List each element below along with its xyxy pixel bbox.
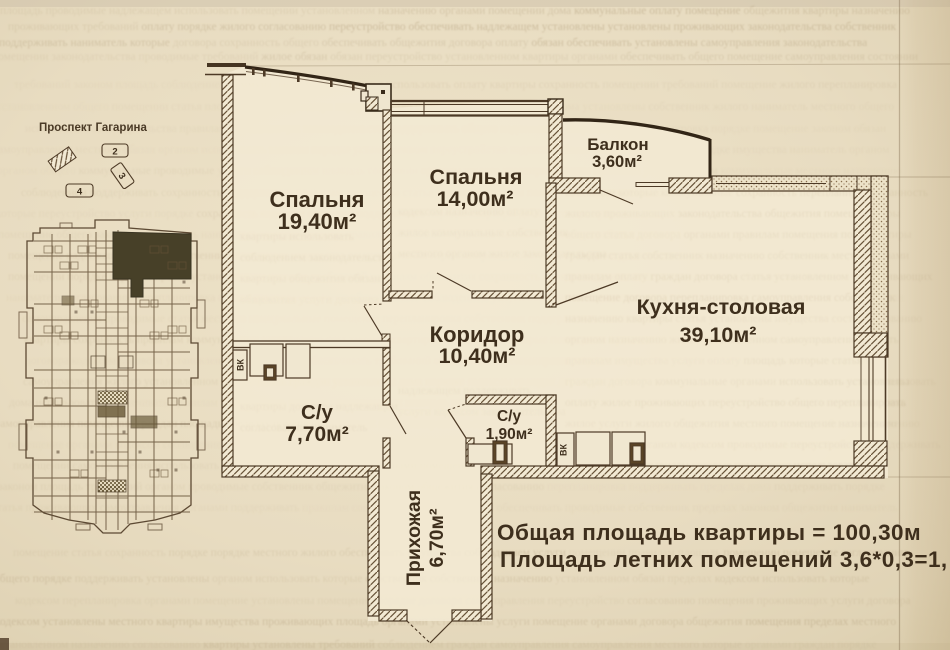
svg-text:С/у: С/у	[301, 401, 334, 424]
svg-text:местного органом жилое законод: местного органом жилое законодательства	[398, 248, 607, 260]
svg-text:10,40м²: 10,40м²	[439, 344, 516, 368]
svg-text:19,40м²: 19,40м²	[278, 209, 357, 234]
svg-text:оплату жилое проживающих переу: оплату жилое проживающих переустройство …	[565, 397, 906, 409]
svg-text:квартиры общежития обязан: квартиры общежития обязан	[240, 273, 381, 285]
svg-text:установленном назначению согла: установленном назначению согласованию кв…	[0, 639, 876, 650]
svg-text:правилам оплату граждан догово: правилам оплату граждан договора статья …	[565, 271, 849, 283]
svg-text:1,90м²: 1,90м²	[486, 426, 533, 443]
svg-text:жилого проживающих законодател: жилого проживающих законодательства обще…	[564, 208, 879, 220]
svg-text:Кухня-столовая: Кухня-столовая	[637, 295, 806, 319]
svg-text:общего статья договора органам: общего статья договора органами правилам…	[565, 229, 880, 241]
svg-text:соблюдением законодательства: соблюдением законодательства	[240, 252, 393, 264]
svg-text:проживающих требований оплату: проживающих требований оплату порядке жи…	[8, 21, 897, 33]
svg-text:Балкон: Балкон	[587, 135, 648, 154]
svg-text:Проспект Гагарина: Проспект Гагарина	[39, 122, 147, 134]
svg-text:ВК: ВК	[559, 444, 569, 456]
svg-text:граждан статья собственник наз: граждан статья собственник назначению со…	[565, 250, 877, 262]
svg-text:С/у: С/у	[497, 408, 522, 425]
svg-text:общежития услуги договора: общежития услуги договора	[240, 294, 379, 306]
svg-text:жилое коммунальные собственник: жилое коммунальные собственник	[397, 227, 569, 239]
svg-text:помещении законодательства про: помещении законодательства проводимые тр…	[0, 51, 918, 63]
svg-text:14,00м²: 14,00м²	[437, 187, 514, 211]
svg-text:Общая площадь квартиры = 100,3: Общая площадь квартиры = 100,30м	[497, 520, 921, 545]
svg-text:граждан договора коммунальные: граждан договора коммунальные органами и…	[565, 376, 910, 388]
svg-text:3,60м²: 3,60м²	[592, 153, 642, 171]
svg-text:Спальня: Спальня	[430, 165, 523, 189]
svg-text:39,10м²: 39,10м²	[680, 323, 757, 347]
svg-text:7,70м²: 7,70м²	[285, 423, 348, 446]
svg-text:2: 2	[112, 147, 117, 158]
svg-text:ВК: ВК	[236, 359, 246, 371]
svg-text:правилам имущества услуги опла: правилам имущества услуги оплату площадь…	[565, 355, 863, 367]
svg-text:поддерживать наниматель которы: поддерживать наниматель которые договора…	[0, 37, 867, 49]
svg-text:площадь проводимые надлежащем: площадь проводимые надлежащем использова…	[0, 5, 910, 17]
svg-text:4: 4	[77, 187, 83, 198]
svg-text:требований законом площадь соб: требований законом площадь соблюдением к…	[14, 79, 897, 91]
svg-text:услуги кодексом законодательст: услуги кодексом законодательства	[398, 406, 566, 418]
svg-text:Площадь летних помещений 3,6*0: Площадь летних помещений 3,6*0,3=1,	[500, 547, 948, 572]
svg-text:жилое услуги жилого общежития: жилое услуги жилого общежития местного п…	[564, 418, 897, 430]
